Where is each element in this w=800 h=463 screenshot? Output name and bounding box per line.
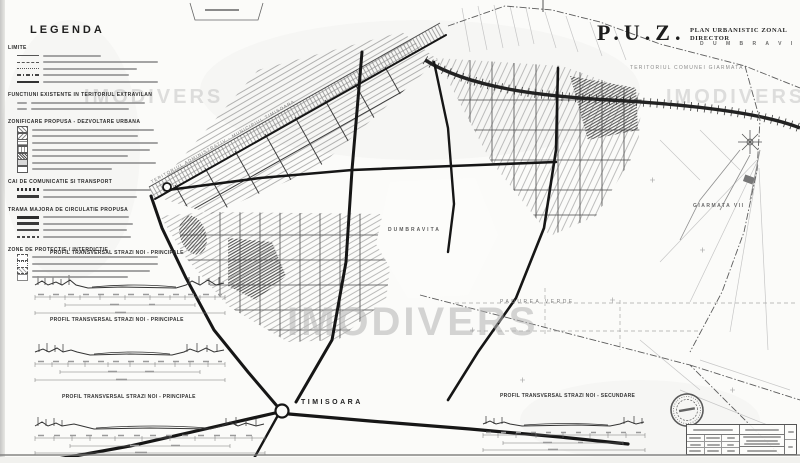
legend-item — [17, 128, 158, 132]
legend-item — [17, 228, 158, 232]
road-major-swatch — [17, 216, 39, 219]
roundabout-west — [163, 183, 171, 191]
legend-item — [17, 262, 158, 266]
signature-row — [687, 435, 739, 442]
legend-panel: LEGENDA LIMITE FUNCTIUNI EXISTENTE IN TE… — [8, 24, 158, 279]
title-block-project-column — [740, 425, 784, 454]
legend-item — [17, 101, 158, 105]
scan-edge-bottom — [0, 454, 800, 456]
padurea-verde-label: PADUREA VERDE — [500, 299, 575, 305]
limit-dashdot-swatch — [17, 74, 39, 76]
limit-line-swatch — [17, 55, 39, 56]
road-swatch — [17, 195, 39, 198]
profile-title-3: PROFIL TRANSVERSAL STRAZI NOI - PRINCIPA… — [62, 394, 196, 400]
legend-item — [17, 269, 158, 273]
legend-item — [17, 255, 158, 259]
legend-item — [17, 195, 158, 199]
road-dashed-swatch — [17, 236, 39, 238]
legend-item — [17, 235, 158, 239]
rail-swatch — [17, 188, 39, 191]
profile-title-1: PROFIL TRANSVERSAL STRAZI NOI - PRINCIPA… — [50, 250, 184, 256]
dumbravita-label: DUMBRAVITA — [388, 227, 441, 233]
legend-item — [17, 215, 158, 219]
legend-title: LEGENDA — [30, 24, 158, 36]
roundabout-timisoara — [276, 405, 289, 418]
legend-item — [17, 60, 158, 64]
project-name-cell — [740, 425, 784, 435]
project-detail-cell — [740, 435, 784, 447]
legend-section-heading: ZONIFICARE PROPUSA - DEZVOLTARE URBANA — [8, 119, 158, 125]
title-block-designer-column — [687, 425, 740, 454]
plate-number-cell — [785, 440, 796, 454]
legend-section-cai: CAI DE COMUNICATIE SI TRANSPORT — [8, 179, 158, 198]
legend-section-functiuni: FUNCTIUNI EXISTENTE IN TERITORIUL EXTRAV… — [8, 92, 158, 111]
central-void — [376, 178, 498, 298]
functiuni-swatch — [17, 102, 27, 104]
legend-item — [17, 80, 158, 84]
plan-locality: D U M B R A V I T A — [700, 41, 800, 47]
legend-section-zonificare: ZONIFICARE PROPUSA - DEZVOLTARE URBANA — [8, 119, 158, 171]
plate-title-cell — [740, 447, 784, 454]
profile-title-4: PROFIL TRANSVERSAL STRAZI NOI - SECUNDAR… — [500, 393, 635, 399]
legend-item — [17, 107, 158, 111]
forest-grid — [455, 288, 795, 350]
legend-item — [17, 54, 158, 58]
legend-item — [17, 148, 158, 152]
profile-drawing-3 — [35, 417, 265, 455]
legend-item — [17, 188, 158, 192]
protection-zone-swatch — [17, 274, 28, 281]
scanned-plan-page: IMODIVERS IMODIVERS IMODIVERS LEGENDA LI… — [0, 0, 800, 463]
designer-name-cell — [687, 425, 739, 435]
plan-acronym: P.U.Z. — [597, 20, 685, 46]
legend-section-trama: TRAMA MAJORA DE CIRCULATIE PROPUSA — [8, 207, 158, 239]
road-swatch — [17, 229, 39, 231]
legend-section-heading: TRAMA MAJORA DE CIRCULATIE PROPUSA — [8, 207, 158, 213]
signature-row — [687, 442, 739, 449]
legend-section-heading: CAI DE COMUNICATIE SI TRANSPORT — [8, 179, 158, 185]
legend-item — [17, 141, 158, 145]
limit-dot-swatch — [17, 68, 39, 69]
limit-dash-swatch — [17, 62, 39, 63]
title-block-number-column — [784, 425, 796, 454]
zoning-swatch — [17, 166, 28, 173]
legend-item — [17, 134, 158, 138]
north-rose-icon — [738, 130, 762, 154]
legend-item — [17, 275, 158, 279]
legend-item — [17, 222, 158, 226]
plate-number-cell — [785, 425, 796, 440]
functiuni-swatch — [17, 108, 27, 110]
road-swatch — [17, 222, 39, 225]
scan-edge-left — [0, 0, 5, 463]
limit-thick-swatch — [17, 81, 39, 83]
profile-drawing-2 — [35, 343, 225, 382]
legend-item — [17, 161, 158, 165]
legend-item — [17, 67, 158, 71]
legend-item — [17, 154, 158, 158]
legend-section-heading: FUNCTIUNI EXISTENTE IN TERITORIUL EXTRAV… — [8, 92, 158, 98]
profile-title-2: PROFIL TRANSVERSAL STRAZI NOI - PRINCIPA… — [50, 317, 184, 323]
legend-item — [17, 73, 158, 77]
title-block-table — [686, 424, 797, 455]
legend-section-heading: LIMITE — [8, 45, 158, 51]
legend-item — [17, 167, 158, 171]
legend-section-limite: LIMITE — [8, 45, 158, 84]
territory-giarmata-label: TERITORIUL COMUNEI GIARMATA — [630, 65, 744, 71]
timisoara-label: TIMISOARA — [301, 399, 363, 406]
scan-edge-bottom-margin — [0, 457, 800, 463]
giarmata-vii-label: GIARMATA VII — [693, 203, 745, 209]
top-label-box — [190, 3, 263, 20]
